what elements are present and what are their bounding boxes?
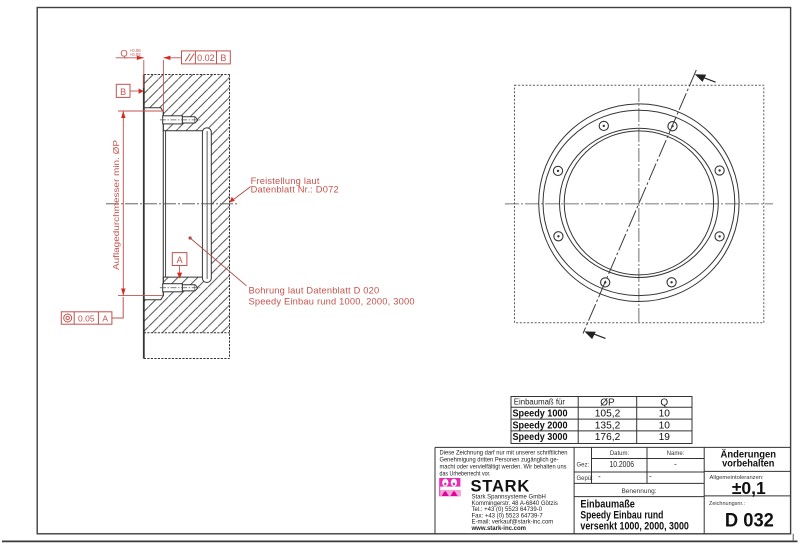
svg-text:vorbehalten: vorbehalten — [722, 459, 774, 470]
svg-text:Fax: +43 (0) 5523 64739-7: Fax: +43 (0) 5523 64739-7 — [472, 513, 544, 519]
svg-text:Speedy 2000: Speedy 2000 — [513, 420, 568, 431]
svg-text:macht oder vervielfältigt werd: macht oder vervielfältigt werden. Wir be… — [440, 463, 567, 470]
svg-text:Gez:: Gez: — [577, 463, 590, 469]
svg-text:Benennung:: Benennung: — [621, 488, 656, 495]
svg-text:Tel.: +43 (0) 5523 64739-0: Tel.: +43 (0) 5523 64739-0 — [472, 507, 543, 513]
svg-text:ØP: ØP — [600, 398, 615, 409]
svg-text:A: A — [177, 255, 183, 265]
svg-text:Einbaumaß für: Einbaumaß für — [514, 398, 566, 407]
svg-text:Q: Q — [660, 398, 668, 409]
svg-text:B: B — [220, 53, 226, 63]
svg-text:105,2: 105,2 — [595, 409, 621, 420]
svg-text:-: - — [598, 472, 601, 481]
svg-text:Speedy 3000: Speedy 3000 — [513, 432, 568, 443]
svg-text:Stark Spannsysteme GmbH: Stark Spannsysteme GmbH — [472, 495, 546, 501]
svg-text:10: 10 — [659, 409, 671, 420]
svg-text:www.stark-inc.com: www.stark-inc.com — [471, 526, 526, 532]
svg-text:19: 19 — [659, 432, 671, 443]
svg-text:176,2: 176,2 — [595, 432, 621, 443]
svg-text:Datenblatt Nr.: D072: Datenblatt Nr.: D072 — [251, 185, 339, 195]
svg-text:Name:: Name: — [667, 451, 685, 457]
svg-text:D 032: D 032 — [725, 509, 774, 531]
svg-text:STARK: STARK — [471, 477, 531, 495]
svg-text:Q: Q — [120, 49, 127, 60]
svg-text:10.2006: 10.2006 — [610, 460, 635, 469]
svg-text:A: A — [102, 313, 108, 323]
svg-text:±0,1: ±0,1 — [732, 478, 766, 498]
svg-text:Genehmigung dritten Personen z: Genehmigung dritten Personen zugänglich … — [440, 456, 559, 463]
svg-text:Diese Zeichnung darf nur mit u: Diese Zeichnung darf nur mit unserer sch… — [440, 449, 568, 456]
svg-text:versenkt 1000, 2000, 3000: versenkt 1000, 2000, 3000 — [580, 521, 689, 533]
svg-text:0.05: 0.05 — [78, 313, 95, 323]
svg-text:Gepü:: Gepü: — [577, 476, 594, 482]
svg-text:+0.02: +0.02 — [130, 52, 142, 57]
svg-text:0.02: 0.02 — [197, 53, 215, 63]
svg-text:Bohrung laut Datenblatt D 020: Bohrung laut Datenblatt D 020 — [249, 286, 380, 296]
svg-text:Datum:: Datum: — [610, 451, 630, 457]
svg-text:Speedy Einbau rund 1000, 2000,: Speedy Einbau rund 1000, 2000, 3000 — [249, 297, 415, 307]
svg-text:10: 10 — [659, 420, 671, 431]
svg-text:B: B — [120, 87, 126, 97]
svg-text:Speedy 1000: Speedy 1000 — [513, 409, 568, 420]
svg-text:135,2: 135,2 — [595, 420, 621, 431]
svg-text:-: - — [674, 460, 677, 469]
svg-text:-: - — [649, 472, 652, 481]
svg-text:Auflagedurchmesser min. ØP: Auflagedurchmesser min. ØP — [112, 140, 121, 270]
svg-text:Kommingerstr. 48 A-6840 Götzis: Kommingerstr. 48 A-6840 Götzis — [472, 501, 558, 507]
svg-text:E-mail: verkauf@stark-inc.com: E-mail: verkauf@stark-inc.com — [472, 520, 554, 526]
svg-text:Zeichnungsnr.:: Zeichnungsnr.: — [709, 501, 746, 507]
